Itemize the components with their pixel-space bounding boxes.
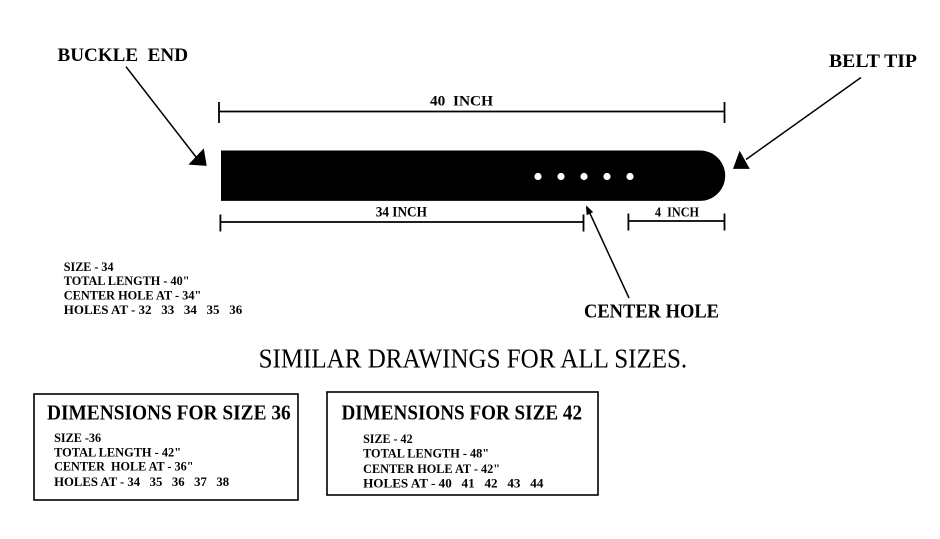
svg-text:CENTER HOLE AT - 36": CENTER HOLE AT - 36" (54, 459, 193, 474)
svg-text:TOTAL LENGTH - 40": TOTAL LENGTH - 40" (64, 273, 190, 288)
svg-text:SIZE - 42: SIZE - 42 (363, 431, 413, 446)
svg-text:4 INCH: 4 INCH (655, 205, 699, 220)
svg-text:40 INCH: 40 INCH (430, 94, 494, 110)
svg-text:HOLES AT - 32 33 34 35: HOLES AT - 32 33 34 35 36 (64, 302, 243, 317)
svg-text:HOLES AT - 34 35 36 37: HOLES AT - 34 35 36 37 38 (54, 474, 229, 489)
svg-text:HOLES AT - 40 41 42 43: HOLES AT - 40 41 42 43 44 (363, 476, 544, 491)
svg-text:SIZE -36: SIZE -36 (54, 430, 101, 445)
svg-text:CENTER HOLE: CENTER HOLE (584, 302, 719, 323)
svg-text:DIMENSIONS FOR SIZE 36: DIMENSIONS FOR SIZE 36 (47, 401, 291, 425)
svg-text:TOTAL LENGTH - 48": TOTAL LENGTH - 48" (363, 446, 489, 461)
svg-text:BELT TIP: BELT TIP (829, 51, 917, 72)
svg-text:CENTER HOLE AT - 42": CENTER HOLE AT - 42" (363, 461, 500, 476)
svg-text:TOTAL LENGTH - 42": TOTAL LENGTH - 42" (54, 444, 181, 459)
svg-text:BUCKLE END: BUCKLE END (58, 45, 189, 66)
svg-text:CENTER HOLE AT - 34": CENTER HOLE AT - 34" (64, 288, 202, 303)
svg-text:34 INCH: 34 INCH (376, 204, 428, 220)
svg-text:SIMILAR DRAWINGS FOR ALL SIZES: SIMILAR DRAWINGS FOR ALL SIZES. (259, 344, 688, 374)
svg-text:DIMENSIONS FOR SIZE 42: DIMENSIONS FOR SIZE 42 (342, 401, 583, 425)
